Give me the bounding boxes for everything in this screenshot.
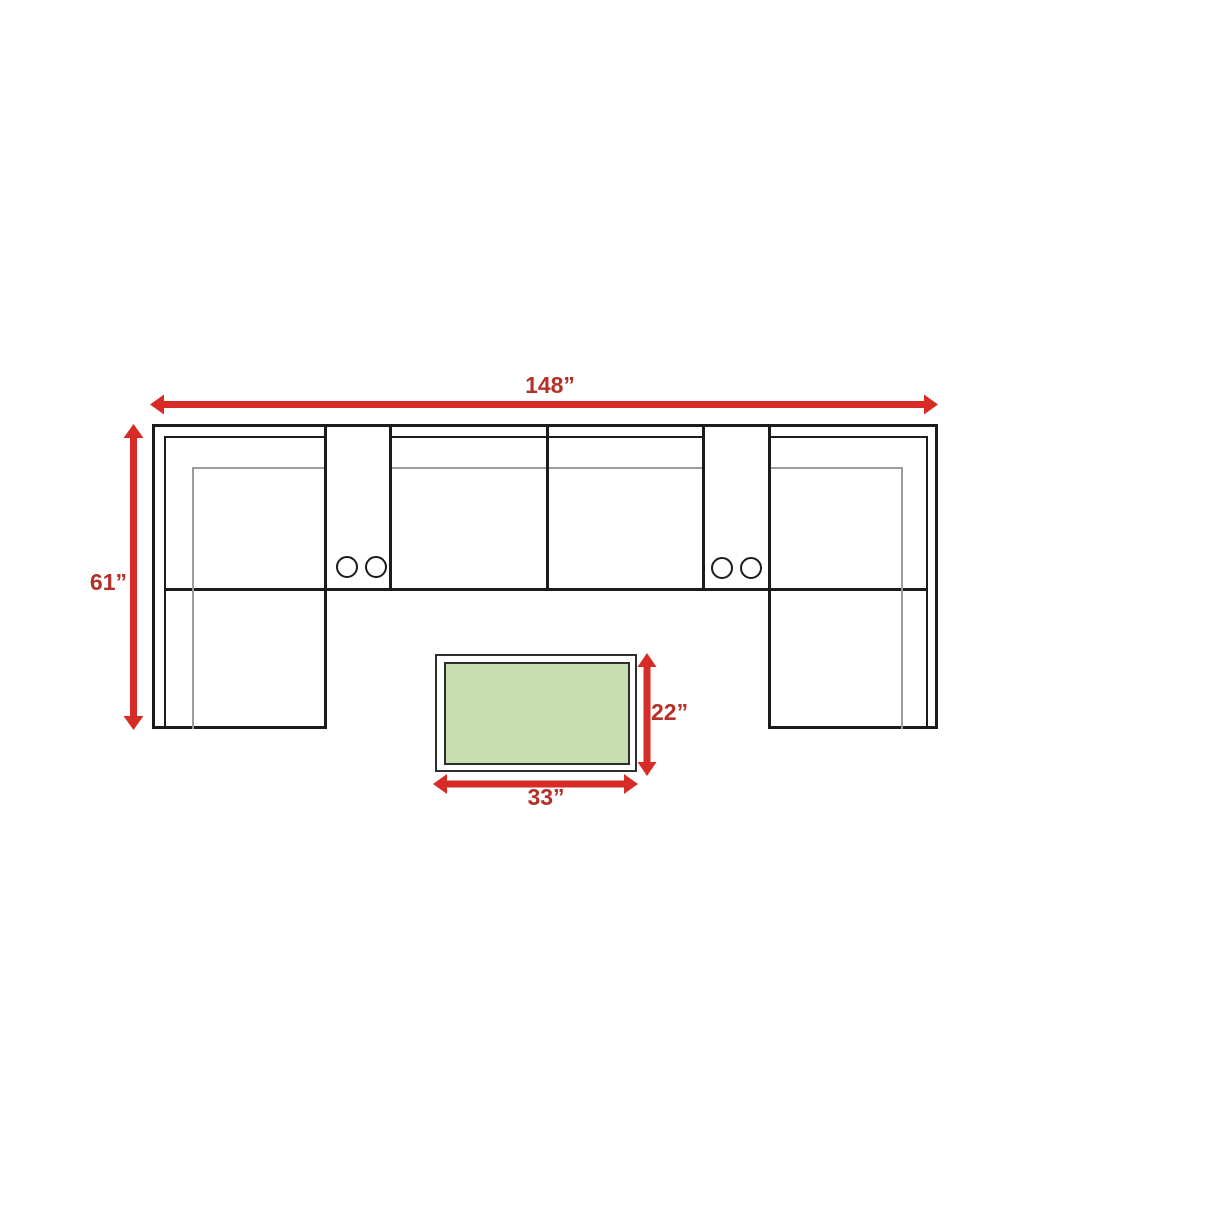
backrest-inner-line-left bbox=[164, 436, 325, 438]
ottoman-width-label: 33” bbox=[515, 786, 577, 809]
sofa-depth-label: 61” bbox=[79, 571, 127, 594]
ottoman-depth-label: 22” bbox=[651, 701, 688, 724]
left-cushion-line-vertical bbox=[192, 467, 194, 729]
cushion-line-left bbox=[192, 467, 325, 469]
sofa-width-label: 148” bbox=[505, 374, 595, 397]
furniture-dimension-diagram: 148” 61” 22” 33” bbox=[0, 0, 1214, 1214]
cushion-line-right bbox=[769, 467, 902, 469]
right-cushion-line-vertical bbox=[901, 467, 903, 729]
cupholder-circle bbox=[365, 556, 387, 578]
sofa-left-edge bbox=[152, 424, 155, 729]
ottoman-top-surface bbox=[444, 662, 630, 765]
cupholder-circle bbox=[711, 557, 733, 579]
console2-left-edge bbox=[702, 424, 705, 591]
dimension-arrows bbox=[0, 0, 1214, 1214]
center-seat-divider bbox=[546, 424, 549, 591]
right-chaise-bottom-edge bbox=[768, 726, 938, 729]
left-chaise-right-edge bbox=[324, 424, 327, 729]
sofa-right-edge bbox=[935, 424, 938, 729]
right-chaise-left-edge bbox=[768, 424, 771, 729]
right-armrest-inner-line bbox=[926, 436, 928, 729]
left-chaise-bottom-edge bbox=[152, 726, 327, 729]
console1-right-edge bbox=[389, 424, 392, 591]
cupholder-circle bbox=[740, 557, 762, 579]
left-armrest-inner-line bbox=[164, 436, 166, 729]
cupholder-circle bbox=[336, 556, 358, 578]
backrest-inner-line-right bbox=[769, 436, 927, 438]
sofa-top-edge bbox=[152, 424, 938, 427]
